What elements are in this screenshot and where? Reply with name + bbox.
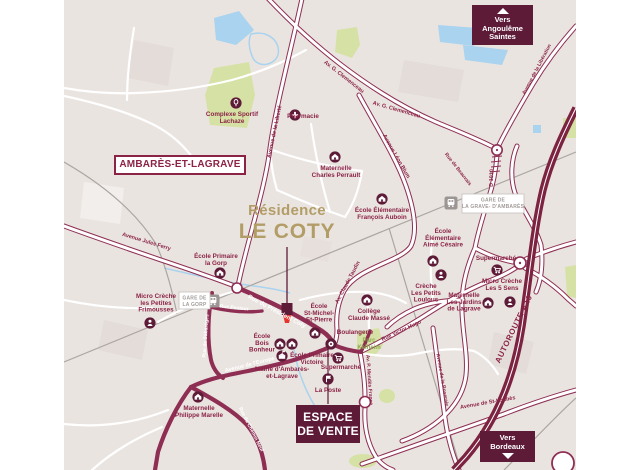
arrow-up-icon bbox=[497, 8, 509, 14]
poi-creche-les-petits-loulous-label: CrècheLes PetitsLoulous bbox=[411, 283, 441, 304]
road-label-avenue-de-st-loubes: Avenue de St-Loubès bbox=[460, 395, 516, 411]
poi-micro-creche-les-5-sens-label: Micro CrècheLes 5 Sens bbox=[482, 278, 522, 292]
north-badge-line1: Vers Angoulême bbox=[474, 16, 531, 33]
poi-maternelle-les-jardins-de-lagrave-label: MaternelleLes Jardinsde Lagrave bbox=[447, 292, 482, 313]
poi-college-claude-masse-label: CollègeClaude Massé bbox=[348, 308, 390, 322]
arrow-down-icon bbox=[502, 453, 514, 459]
espace-line1: ESPACE bbox=[296, 410, 360, 424]
city-label: AMBARÈS-ET-LAGRAVE bbox=[114, 155, 246, 175]
poi-complexe-sportif-lachaze-icon bbox=[230, 97, 241, 108]
poi-micro-creche-les-petites-frimousses-label: Micro Crècheles PetitesFrimousses bbox=[136, 293, 176, 314]
espace-de-vente-badge: ESPACE DE VENTE bbox=[296, 405, 360, 443]
poi-ecole-st-michel-st-pierre-label: ÉcoleSt-Michel-St-Pierre bbox=[304, 301, 334, 324]
gare-de-la-gorp-label: GARE DELA GORP bbox=[182, 296, 207, 309]
poi-maternelle-charles-perrault-icon bbox=[329, 151, 340, 162]
poi-ecole-bois-bonheur-icon bbox=[274, 338, 285, 349]
poi-creche-les-petits-loulous-icon bbox=[435, 269, 446, 280]
poi-ecole-primaire-la-gorp-icon bbox=[214, 267, 225, 278]
road-label-rue-victor-hugo: Rue Victor Hugo bbox=[381, 319, 423, 343]
poi-ecole-elementaire-aime-cesaire-label: ÉcoleÉlémentaireAimé Césaire bbox=[423, 226, 463, 249]
poi-maternelle-les-jardins-de-lagrave-icon bbox=[482, 297, 493, 308]
leader-lines bbox=[287, 247, 328, 404]
poi-boulangerie-icon bbox=[325, 338, 336, 349]
bread-icon bbox=[328, 341, 333, 346]
road-label-avenue-de-la-liberation: Avenue de la Libération bbox=[521, 43, 553, 95]
poi-la-poste-label: La Poste bbox=[315, 387, 342, 394]
poi-supermarche-est-icon bbox=[491, 264, 502, 275]
espace-line2: DE VENTE bbox=[296, 424, 360, 438]
gare-de-la-grave-d-ambares-icon bbox=[445, 197, 458, 210]
poi-maternelle-philippe-marelle-icon bbox=[192, 391, 203, 402]
poi-micro-creche-les-5-sens-icon bbox=[504, 296, 515, 307]
road-label-d-1010: D 1010 bbox=[489, 169, 496, 187]
map-canvas: GARE DELA GORPGARE DELA GRAVE- D'AMBARÈS… bbox=[64, 0, 576, 470]
direction-badge-north: Vers Angoulême Saintes bbox=[472, 5, 533, 45]
poi-boulangerie-label: Boulangerie bbox=[337, 329, 374, 336]
poi-micro-creche-les-petites-frimousses-icon bbox=[144, 317, 155, 328]
south-badge-line2: Bordeaux bbox=[482, 443, 533, 452]
poi-mairie-ambares-et-lagrave-icon bbox=[276, 350, 287, 361]
railway-west bbox=[64, 162, 177, 314]
poi-ecole-elementaire-francois-auboin-label: École ÉlémentaireFrançois Auboin bbox=[355, 205, 410, 221]
poi-ecole-primaire-la-gorp-label: École Primairela Gorp bbox=[194, 251, 238, 267]
road-label-rue-de-beauvais: Rue de Beauvais bbox=[443, 152, 473, 187]
poi-pharmacie-label: Pharmacie bbox=[287, 113, 319, 120]
poi-ecole-bois-bonheur-label: ÉcoleBoisBonheur bbox=[249, 331, 275, 354]
poi-supermarche-centre-label: Supermarché bbox=[321, 364, 362, 371]
poi-maternelle-philippe-marelle-label: MaternellePhilippe Marelle bbox=[175, 405, 223, 419]
north-badge-line2: Saintes bbox=[474, 33, 531, 42]
poi-ecole-elementaire-aime-cesaire-icon bbox=[427, 255, 438, 266]
road-label-avenue-leon-blum: Avenue Léon Blum bbox=[381, 134, 411, 180]
poi-supermarche-centre-icon bbox=[332, 352, 343, 363]
poi-college-claude-masse-icon bbox=[361, 294, 372, 305]
poi-ecole-st-michel-st-pierre-icon bbox=[309, 327, 320, 338]
map-screenshot: GARE DELA GORPGARE DELA GRAVE- D'AMBARÈS… bbox=[0, 0, 640, 470]
road-label-rue-du-chemin-neuf: Rue du Chemin Neuf bbox=[237, 406, 265, 453]
direction-badge-south: Vers Bordeaux bbox=[480, 431, 535, 462]
poi-supermarche-est-label: Supermarché bbox=[476, 255, 517, 262]
poi-la-poste-icon bbox=[322, 373, 333, 384]
poi-ecole-elementaire-francois-auboin-icon bbox=[376, 193, 387, 204]
road-label-av-claude-taudin: Av. Claude Taudin bbox=[334, 260, 362, 305]
poi-ecole-primaire-victoire-icon bbox=[286, 338, 297, 349]
city-map: GARE DELA GORPGARE DELA GRAVE- D'AMBARÈS… bbox=[64, 0, 576, 470]
